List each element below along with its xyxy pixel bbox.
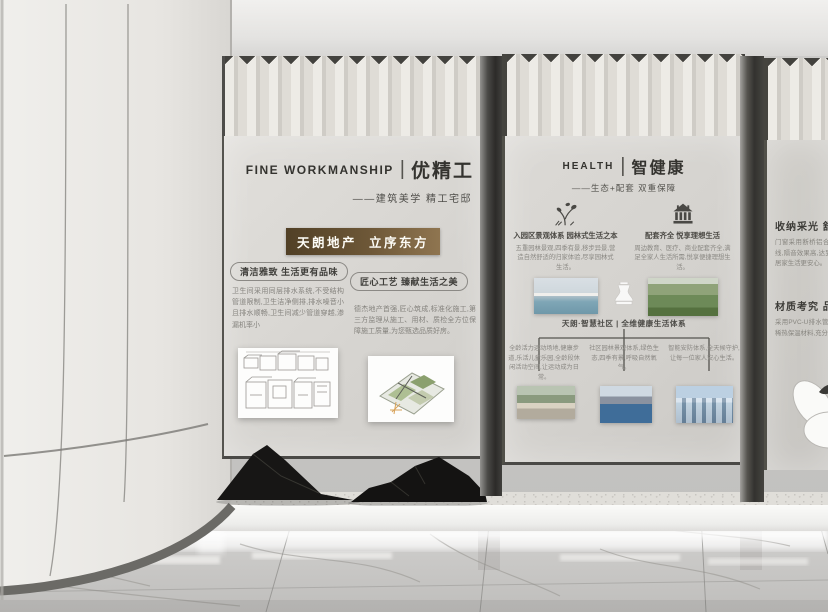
detail-body-light: 门窗采用断桥铝合金,有效隔离有害紫外线,隔音效果高,达到国家节能安全标准,让居家… <box>775 238 828 270</box>
park-trees-photo <box>648 278 718 316</box>
rock-left <box>217 445 353 500</box>
section-pill-clean: 清洁雅致 生活更有品味 <box>230 262 348 281</box>
feature-landscape: 入园区景观体系 园林式生活之本 五重园林景观,四季有景,移步异景,营造自然舒适的… <box>511 200 621 316</box>
pavilion-icon <box>670 200 696 228</box>
health-subtitle: ——生态+配套 双重保障 <box>505 182 743 194</box>
project-photos-row <box>517 386 733 423</box>
exhibition-hall-render: FINE WORKMANSHIP | 优精工 ——建筑美学 精工宅邸 天朗地产 … <box>0 0 828 612</box>
floorplan-render-card <box>368 356 454 422</box>
tree-icon <box>553 200 579 228</box>
branch-text: 全龄活力运动场地,健康步道,乐活儿童乐园,全龄段休闲活动空间,让运动成为日常。 <box>507 344 581 382</box>
header-divider: | <box>400 158 405 181</box>
workmanship-subtitle: ——建筑美学 精工宅邸 <box>353 190 472 205</box>
detail-board-partial: 收纳采光 舒享空间 门窗采用断桥铝合金,有效隔离有害紫外线,隔音效果高,达到国家… <box>764 140 828 470</box>
cabinet-line-drawing <box>238 348 338 418</box>
system-branches: 全龄活力运动场地,健康步道,乐活儿童乐园,全龄段休闲活动空间,让运动成为日常。 … <box>507 344 741 382</box>
feature-title: 配套齐全 悦享理想生活 <box>645 231 720 241</box>
feature-title: 入园区景观体系 园林式生活之本 <box>513 231 617 241</box>
panel-divider-left <box>480 56 502 496</box>
pleat-zigzag <box>768 58 828 70</box>
header-english: FINE WORKMANSHIP <box>246 163 394 177</box>
cabinet-sketch <box>238 348 338 418</box>
section-pill-craft: 匠心工艺 臻献生活之美 <box>350 272 468 291</box>
header-chinese: 优精工 <box>411 156 474 183</box>
detail-heading-material: 材质考究 品质严选 <box>775 298 828 313</box>
section-body-clean: 卫生间采用同层排水系统,不受结构管道限制,卫生洁净侧排,排水噪音小且排水顺畅,卫… <box>232 286 344 331</box>
urn-emblem-icon <box>608 282 640 308</box>
feature-body: 五重园林景观,四季有景,移步异景,营造自然舒适的归家体验,尽享园林式生活。 <box>515 244 617 272</box>
pleated-top-panel-1 <box>222 56 483 138</box>
header-divider: | <box>620 155 625 178</box>
feature-amenities: 配套齐全 悦享理想生活 周边教育、医疗、商业配套齐全,满足全家人生活所需,悦享便… <box>628 200 738 316</box>
black-rock-sculptures <box>203 436 493 506</box>
workmanship-board: FINE WORKMANSHIP | 优精工 ——建筑美学 精工宅邸 天朗地产 … <box>222 136 482 459</box>
header-english: HEALTH <box>562 161 614 172</box>
workmanship-header: FINE WORKMANSHIP | 优精工 <box>246 156 474 183</box>
branch-text: 智能安防体系,全天候守护,让每一位家人安心生活。 <box>667 344 741 382</box>
pleat-zigzag <box>507 54 745 66</box>
resort-pool-photo <box>534 278 598 314</box>
pleated-top-panel-3 <box>764 58 828 142</box>
system-title: 天朗·智慧社区 | 全维健康生活体系 <box>505 318 743 329</box>
detail-heading-light: 收纳采光 舒享空间 <box>775 218 828 233</box>
curved-cabinet-wall <box>0 0 240 612</box>
floorplan-axonometric <box>368 356 454 422</box>
pleat-zigzag <box>225 56 483 68</box>
detail-body-material: 采用PVC-U排水管,隔层、防腐、阻力小,稀热保温材料,充分让建筑品质经久耐用。 <box>775 318 828 339</box>
pleated-top-panel-2 <box>502 54 745 138</box>
white-flower-sculpture <box>775 364 828 470</box>
rock-right <box>351 457 487 502</box>
health-header: HEALTH | 智健康 <box>505 154 743 178</box>
community-gate-photo <box>517 386 575 419</box>
section-body-craft: 德杰地产首强,匠心筑成,标准化施工,第三方监理从施工、用材、质检全方位保障施工质… <box>354 304 476 338</box>
header-chinese: 智健康 <box>632 154 686 178</box>
feature-body: 周边教育、医疗、商业配套齐全,满足全家人生活所需,悦享便捷理想生活。 <box>632 244 734 272</box>
panel-divider-right <box>740 56 764 502</box>
health-board: HEALTH | 智健康 ——生态+配套 双重保障 入园区景观体系 园林式生活之… <box>502 136 743 465</box>
modern-towers-photo <box>676 386 733 423</box>
branch-text: 社区园林景观体系,绿色生态,四季有景,呼吸自然氧气。 <box>587 344 661 382</box>
plinth-front <box>194 504 828 531</box>
pool-villa-photo <box>600 386 652 423</box>
brand-badge: 天朗地产 立序东方 <box>286 228 440 255</box>
